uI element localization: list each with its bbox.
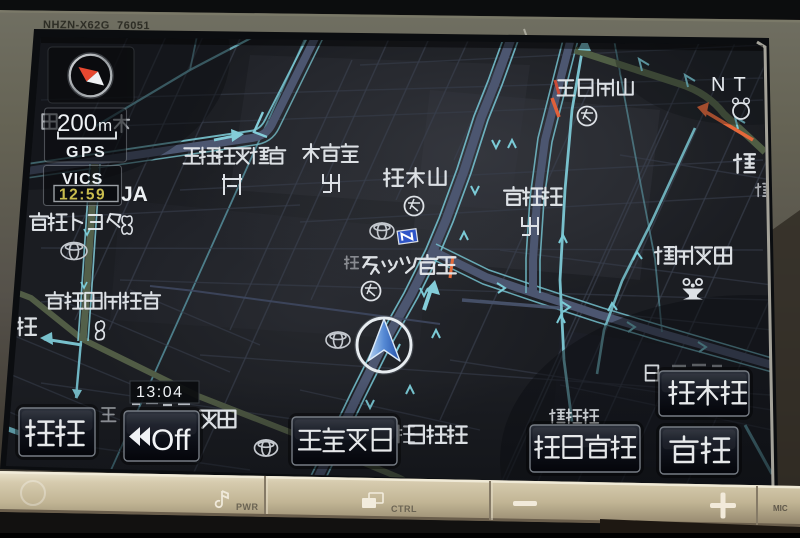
svg-text:JA: JA bbox=[121, 183, 148, 206]
svg-text:PWR: PWR bbox=[236, 502, 259, 512]
svg-text:CTRL: CTRL bbox=[391, 504, 417, 514]
svg-text:MIC: MIC bbox=[773, 504, 788, 513]
svg-text:12:59: 12:59 bbox=[59, 187, 106, 204]
svg-text:m: m bbox=[98, 116, 112, 135]
svg-text:Off: Off bbox=[151, 424, 191, 457]
svg-text:NT: NT bbox=[711, 74, 754, 96]
svg-text:200: 200 bbox=[57, 110, 97, 137]
svg-text:GPS: GPS bbox=[66, 144, 107, 161]
svg-text:13:04: 13:04 bbox=[136, 384, 184, 401]
